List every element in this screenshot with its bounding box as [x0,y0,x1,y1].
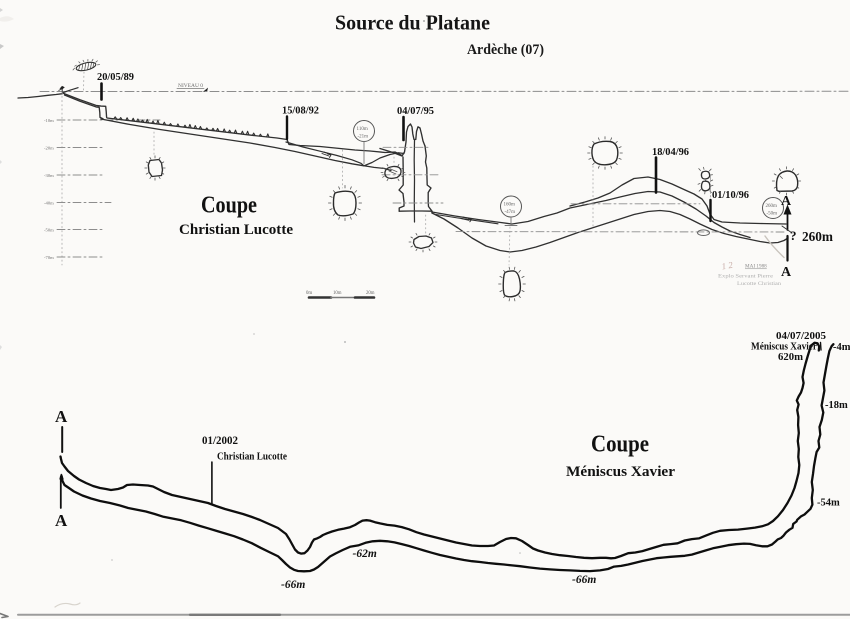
svg-text:MAI 1988: MAI 1988 [745,264,767,270]
svg-text:Explo Servant Pierre: Explo Servant Pierre [718,275,774,280]
svg-text:-4m: -4m [833,342,850,353]
svg-text:04/07/95: 04/07/95 [397,106,434,117]
svg-text:110m: 110m [357,127,368,132]
svg-text:-18m: -18m [825,400,848,411]
svg-text:01/10/96: 01/10/96 [712,190,749,201]
svg-text:?: ? [790,228,797,243]
svg-text:260m: 260m [802,230,833,245]
svg-text:-21m: -21m [358,135,369,140]
svg-text:-30m: -30m [44,173,54,178]
svg-text:-70m: -70m [44,255,54,260]
svg-text:A: A [55,407,68,426]
svg-text:Coupe: Coupe [591,432,649,458]
svg-text:Lucotte Christian: Lucotte Christian [737,282,782,287]
svg-text:-66m: -66m [572,574,596,586]
svg-text:0m: 0m [306,291,312,296]
svg-text:620m: 620m [778,351,803,363]
svg-text:-50m: -50m [44,227,54,232]
svg-text:-50m: -50m [767,212,778,217]
svg-text:-20m: -20m [44,145,54,150]
svg-text:18/04/96: 18/04/96 [652,147,689,158]
svg-text:-10m: -10m [44,118,54,123]
svg-text:A: A [55,511,68,530]
svg-text:Ardèche (07): Ardèche (07) [467,42,544,58]
svg-text:160m: 160m [504,203,516,208]
svg-text:20/05/89: 20/05/89 [97,72,134,83]
svg-text:15/08/92: 15/08/92 [282,106,319,117]
svg-text:-66m: -66m [281,579,305,591]
svg-text:Christian Lucotte: Christian Lucotte [217,451,287,463]
svg-text:20m: 20m [366,291,375,296]
svg-text:04/07/2005: 04/07/2005 [776,331,826,342]
svg-text:Méniscus Xavier: Méniscus Xavier [566,464,675,480]
svg-text:Coupe: Coupe [201,192,257,219]
svg-text:-62m: -62m [353,548,377,560]
svg-text:-40m: -40m [44,200,54,205]
svg-text:1 2: 1 2 [721,260,734,272]
svg-text:01/2002: 01/2002 [202,435,238,447]
svg-text:-54m: -54m [817,498,840,509]
svg-text:260m: 260m [766,204,778,209]
svg-text:10m: 10m [333,291,342,296]
svg-text:-47m: -47m [505,210,516,215]
svg-text:A: A [781,265,792,280]
svg-text:Christian Lucotte: Christian Lucotte [179,222,293,238]
svg-text:Source du Platane: Source du Platane [335,11,490,35]
svg-text:A: A [781,194,792,209]
